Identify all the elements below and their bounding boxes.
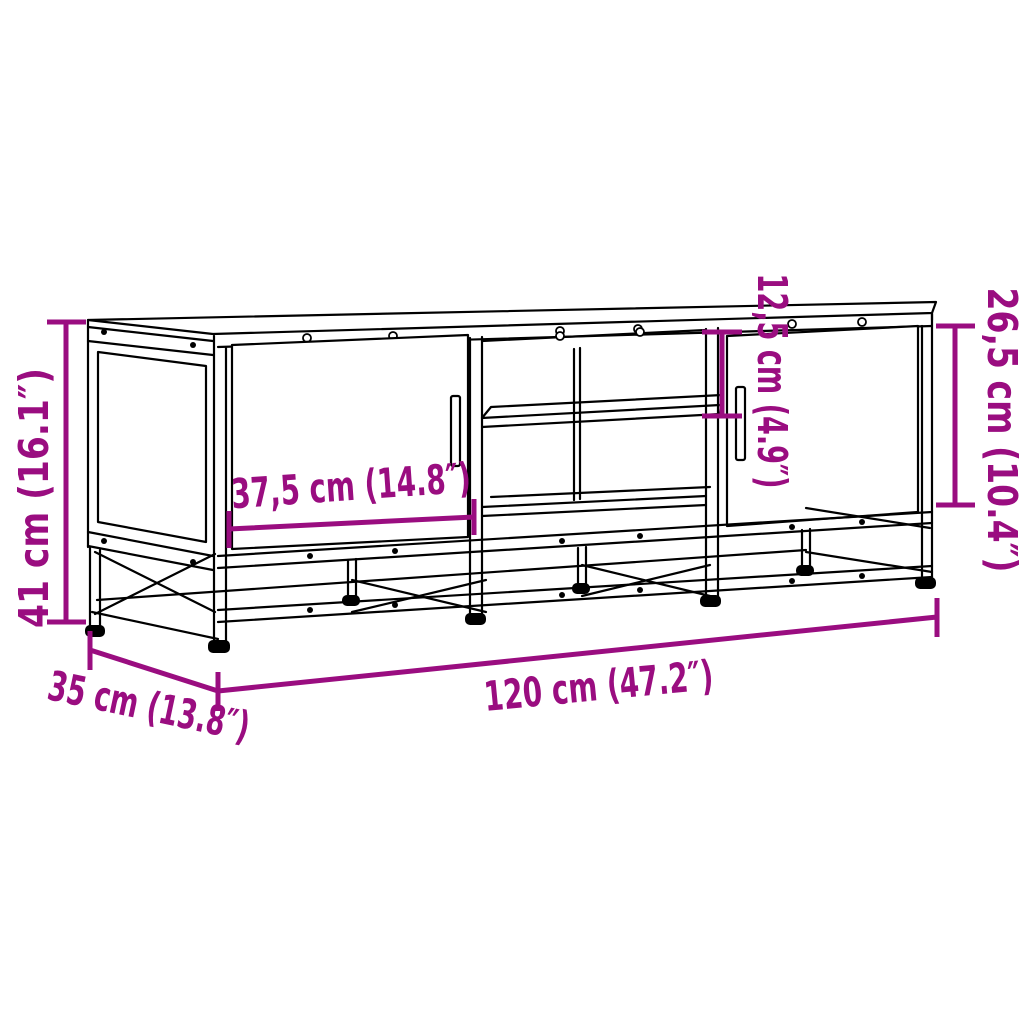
screw-hole [392, 548, 398, 554]
right-door-handle [736, 387, 745, 460]
screw-hole [307, 553, 313, 559]
screw-hole [636, 328, 644, 336]
shelf-opening-dimension-label: 12,5 cm (4.9″) [748, 274, 796, 489]
diagram-canvas: 41 cm (16.1″) 35 cm (13.8″) 120 cm (47.2… [0, 0, 1024, 1024]
front-right-post [922, 314, 932, 580]
foot [342, 595, 360, 606]
middle-shelf-compartment [482, 328, 722, 516]
screw-hole [789, 578, 795, 584]
back-mid-left-leg [348, 559, 356, 597]
back-left-leg [90, 548, 100, 628]
screw-hole [556, 332, 564, 340]
back-support-post [574, 348, 580, 500]
base-lower-rail [218, 566, 932, 622]
screw-hole [559, 592, 565, 598]
tv-stand-drawing [85, 302, 936, 653]
middle-shelf [482, 395, 722, 427]
compartment-top-edge [482, 330, 706, 341]
foot [572, 583, 590, 594]
screw-hole [789, 524, 795, 530]
screw-hole [392, 602, 398, 608]
screw-hole [559, 538, 565, 544]
cross-brace-middle [352, 580, 486, 612]
foot [796, 565, 814, 576]
foot [915, 577, 936, 589]
left-side-panel [88, 327, 213, 570]
cross-brace-left [95, 552, 215, 614]
tv-stand-dimension-diagram: 41 cm (16.1″) 35 cm (13.8″) 120 cm (47.2… [0, 0, 1024, 1024]
side-panel-inset [98, 352, 206, 542]
screw-hole [637, 587, 643, 593]
screw-hole [859, 573, 865, 579]
screw-hole [637, 533, 643, 539]
screw-hole [190, 342, 196, 348]
height-dimension-label: 41 cm (16.1″) [10, 368, 58, 628]
base-left-side-rail [92, 612, 218, 639]
screw-hole [101, 329, 107, 335]
foot [465, 613, 486, 625]
foot [700, 595, 721, 607]
screw-hole [858, 318, 866, 326]
screw-hole [307, 607, 313, 613]
screw-hole [859, 519, 865, 525]
screw-hole [101, 538, 107, 544]
depth-dimension-label: 35 cm (13.8″) [44, 662, 255, 752]
compartment-floor [482, 487, 710, 516]
foot [208, 640, 230, 653]
back-right-leg [802, 529, 810, 567]
door-height-dimension-line [936, 326, 975, 505]
front-left-post [214, 336, 226, 643]
door-height-dimension-label: 26,5 cm (10.4″) [978, 288, 1024, 573]
